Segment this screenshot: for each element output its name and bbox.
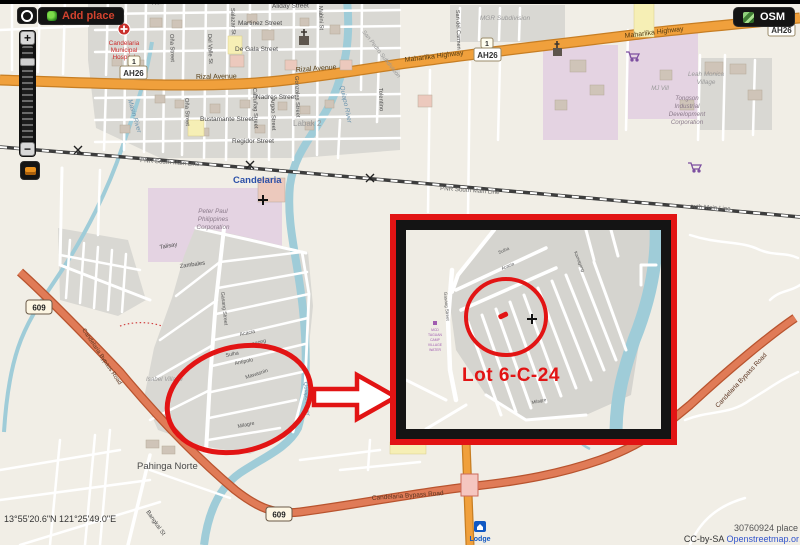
- poi-layer-button[interactable]: [20, 161, 40, 180]
- add-place-button[interactable]: Add place: [38, 7, 124, 25]
- street-label: Regidor Street: [232, 138, 274, 145]
- street-label: Salazar St: [229, 8, 236, 35]
- window-top-bar: [0, 0, 800, 4]
- street-label: Oña Street: [183, 98, 190, 127]
- area-label: Labak 2: [293, 119, 322, 128]
- area-label: Peter Paul: [198, 208, 228, 215]
- attribution-license: CC-by-SA: [684, 534, 724, 544]
- area-label: Corporation: [197, 224, 230, 231]
- street-label: Nadres Street: [256, 94, 296, 101]
- map-layer-icon: [743, 12, 754, 23]
- street-label: Del Valle St: [206, 34, 213, 64]
- svg-text:AH26: AH26: [771, 26, 792, 35]
- area-label: Development: [669, 111, 706, 118]
- geolocate-button[interactable]: [17, 7, 37, 24]
- inset-zoom-box: MCD TAGUAN CAMP VILLAGE WATER Sulha Acac…: [390, 214, 677, 445]
- place-info: 30760924 place: [734, 523, 798, 533]
- svg-text:1: 1: [132, 59, 136, 66]
- svg-text:VILLAGE: VILLAGE: [428, 343, 443, 347]
- orange-crate-icon: [25, 167, 36, 175]
- area-label: Village: [697, 79, 716, 86]
- poi-label: Candelaria: [109, 40, 140, 47]
- area-label: Leah Monica: [688, 71, 725, 78]
- poi-label: Lodge: [470, 536, 491, 543]
- locate-icon: [21, 10, 33, 22]
- osm-layer-button[interactable]: OSM: [733, 7, 795, 27]
- lot-annotation-label: Lot 6-C-24: [462, 365, 560, 387]
- road-label: Rizal Avenue: [196, 73, 237, 81]
- inset-map: MCD TAGUAN CAMP VILLAGE WATER Sulha Acac…: [406, 230, 661, 429]
- lodge-icon: [474, 521, 486, 532]
- svg-text:MCD: MCD: [431, 328, 439, 332]
- zoom-handle[interactable]: [20, 58, 35, 66]
- attribution-link[interactable]: Openstreetmap.or: [726, 534, 799, 544]
- svg-text:TAGUAN: TAGUAN: [428, 333, 442, 337]
- zoom-in-button[interactable]: +: [20, 31, 35, 45]
- attribution: CC-by-SA Openstreetmap.or: [684, 534, 799, 544]
- street-label: Argao Street: [269, 98, 276, 131]
- street-label: Bustamante Street: [200, 116, 254, 123]
- osm-label: OSM: [760, 12, 785, 23]
- svg-text:AH26: AH26: [123, 69, 144, 78]
- svg-text:WATER: WATER: [429, 348, 441, 352]
- street-label: De Gala Street: [235, 46, 278, 53]
- area-label: Tongson: [675, 95, 699, 102]
- add-place-marker-icon: [47, 11, 57, 21]
- map-window: Norte Aliday Street Martinez Street De G…: [0, 0, 800, 545]
- svg-text:CAMP: CAMP: [430, 338, 441, 342]
- place-label: Pahinga Norte: [137, 461, 198, 472]
- area-label: Corporation: [671, 119, 704, 126]
- svg-text:609: 609: [272, 511, 286, 520]
- zoom-out-button[interactable]: −: [20, 142, 35, 156]
- poi-label: Municipal: [111, 47, 138, 54]
- svg-text:1: 1: [485, 41, 489, 48]
- inset-map-canvas: MCD TAGUAN CAMP VILLAGE WATER Sulha Acac…: [406, 230, 661, 429]
- street-label: Mabini St: [317, 6, 324, 31]
- svg-text:609: 609: [32, 304, 46, 313]
- cursor-coordinates: 13°55'20.6"N 121°25'49.0"E: [4, 514, 116, 524]
- town-label: Candelaria: [233, 175, 282, 186]
- zoom-slider[interactable]: + −: [19, 30, 36, 157]
- zoom-track[interactable]: [22, 46, 33, 141]
- street-label: Martinez Street: [238, 20, 282, 27]
- street-label: Oña Street: [168, 34, 175, 63]
- area-label: MGR Subdivision: [480, 15, 531, 22]
- street-label: Tolentino: [377, 88, 384, 111]
- area-label: Philippines: [198, 216, 229, 223]
- add-place-label: Add place: [62, 11, 115, 22]
- area-label: MJ Vill: [651, 86, 669, 92]
- svg-text:AH26: AH26: [477, 51, 498, 60]
- area-label: Industrial: [674, 103, 700, 110]
